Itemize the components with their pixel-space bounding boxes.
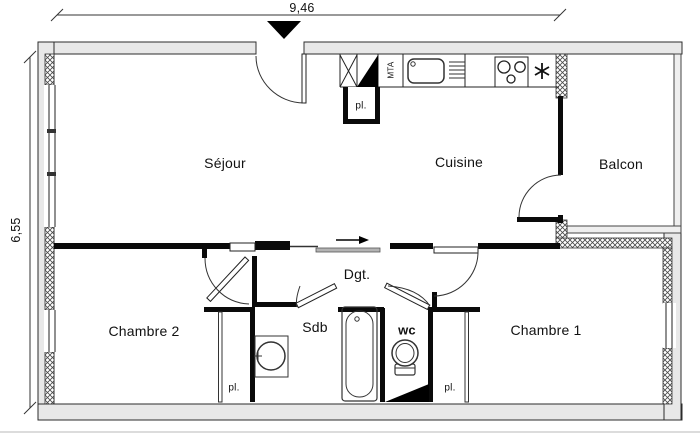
floor-plan: 9,46 6,55 Séjour Cuisine Balcon Chambre … (0, 0, 700, 441)
sliding-door-sejour-dgt (290, 236, 380, 252)
duct-triangle-icon (357, 55, 378, 87)
duct-x-icon (340, 55, 357, 87)
door-wc (385, 283, 430, 309)
entrance-opening (256, 42, 304, 54)
floor-plan-drawing (0, 0, 700, 441)
room-label-sejour: Séjour (204, 155, 246, 171)
room-label-balcon: Balcon (599, 156, 643, 172)
door-sdb (296, 284, 337, 308)
window-chambre2 (44, 310, 57, 352)
duct-label-mta: MTA (387, 62, 396, 79)
bathtub-icon (342, 307, 377, 401)
fridge-asterisk-icon (535, 63, 549, 79)
wall-pocket-panel (230, 243, 255, 251)
door-chambre2 (205, 257, 249, 304)
entrance-arrow-icon (267, 21, 301, 39)
toilet-icon (392, 340, 418, 375)
dimension-width-label: 9,46 (289, 1, 314, 15)
washbasin-icon (254, 336, 288, 377)
dimension-line-left (24, 51, 36, 414)
room-label-chambre1: Chambre 1 (510, 322, 581, 338)
room-label-cuisine: Cuisine (435, 154, 483, 170)
room-label-dgt: Dgt. (344, 266, 370, 282)
closet-front-chambre2 (219, 312, 223, 402)
sink-icon (408, 59, 465, 83)
wc-duct-icon (385, 384, 429, 402)
room-label-chambre2: Chambre 2 (108, 323, 179, 339)
entrance-door (256, 54, 306, 103)
balcony-walls (567, 54, 681, 233)
door-cuisine-balcon (517, 175, 561, 222)
sliding-direction-arrow-icon (359, 236, 369, 244)
partition-walls (54, 96, 563, 402)
dimension-height-label: 6,55 (9, 217, 23, 242)
closet-front-chambre1 (465, 312, 469, 402)
cooktop-icon (495, 57, 528, 87)
room-label-wc: wc (398, 323, 416, 338)
room-label-sdb: Sdb (302, 319, 328, 335)
window-chambre1 (663, 303, 676, 348)
door-chambre1 (434, 247, 478, 296)
closet-label-cuisine: pl. (355, 101, 366, 112)
window-sejour (44, 85, 57, 227)
closet-label-chambre1: pl. (444, 383, 455, 394)
closet-label-chambre2: pl. (228, 383, 239, 394)
drawing-edge-line (0, 431, 700, 433)
